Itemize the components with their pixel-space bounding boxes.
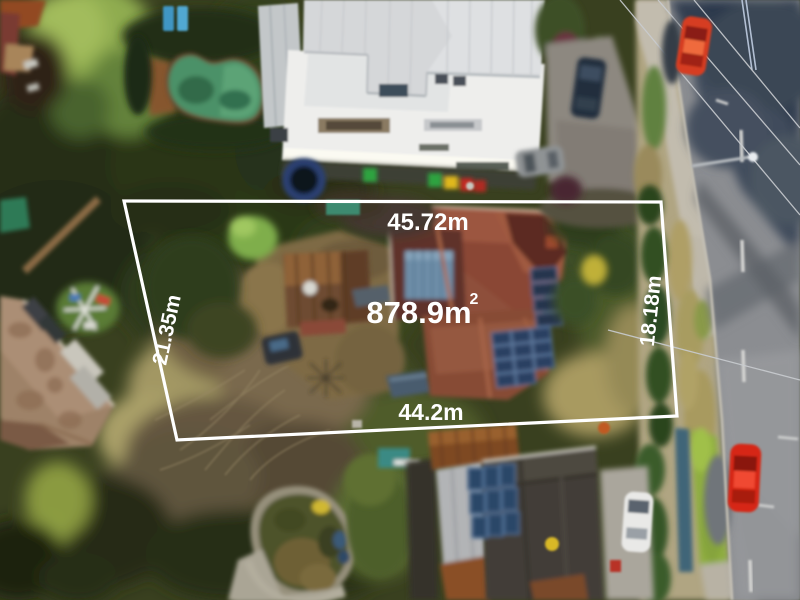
svg-text:45.72m: 45.72m: [387, 209, 468, 236]
svg-text:44.2m: 44.2m: [398, 399, 463, 425]
svg-text:2: 2: [470, 291, 479, 308]
svg-text:878.9m: 878.9m: [366, 295, 471, 330]
